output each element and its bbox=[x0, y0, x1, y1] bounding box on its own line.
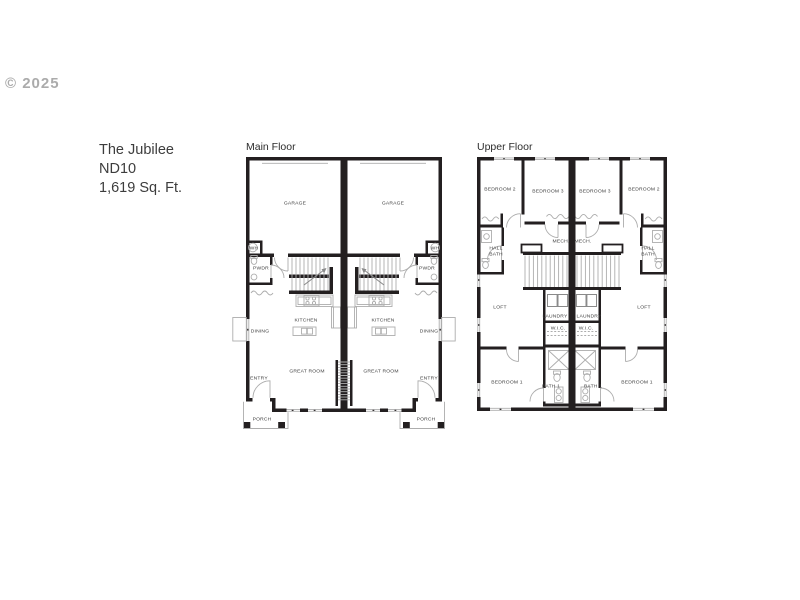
room-label-loft-left: LOFT bbox=[493, 304, 506, 310]
room-label-dining-left: DINING bbox=[250, 328, 268, 334]
room-label-wic-left: W.I.C. bbox=[551, 325, 566, 331]
room-label-entry-left: ENTRY bbox=[250, 375, 268, 381]
main-floor-left-unit bbox=[233, 157, 344, 429]
main-floor-title: Main Floor bbox=[246, 141, 296, 153]
room-label-porch-left: PORCH bbox=[253, 416, 272, 422]
room-label-kitchen-right: KITCHEN bbox=[371, 317, 394, 323]
plan-info: The Jubilee ND10 1,619 Sq. Ft. bbox=[99, 141, 182, 198]
room-label-pwdr-left: PWDR bbox=[253, 265, 269, 271]
room-label-bedroom3-right: BEDROOM 3 bbox=[579, 188, 610, 194]
room-label-hall-bath-right: HALLBATH bbox=[641, 245, 655, 257]
main-floor-plan: Main Floor bbox=[246, 157, 442, 439]
room-label-laundry-left: LAUNDRY bbox=[543, 313, 568, 319]
room-label-great-room-left: GREAT ROOM bbox=[289, 368, 324, 374]
room-label-loft-right: LOFT bbox=[637, 304, 650, 310]
room-label-garage-left: GARAGE bbox=[284, 200, 306, 206]
room-label-bedroom2-left: BEDROOM 2 bbox=[484, 186, 515, 192]
room-label-bath1-left: BATH 1 bbox=[542, 383, 560, 389]
room-label-bedroom3-left: BEDROOM 3 bbox=[532, 188, 563, 194]
room-label-laundry-right: LAUNDRY bbox=[577, 313, 602, 319]
room-label-kitchen-left: KITCHEN bbox=[294, 317, 317, 323]
room-label-entry-right: ENTRY bbox=[420, 375, 438, 381]
room-label-mech-right: MECH. bbox=[575, 238, 592, 244]
upper-floor-linework bbox=[477, 157, 667, 413]
plan-name: The Jubilee bbox=[99, 141, 182, 160]
room-label-mech-left: MECH. bbox=[553, 238, 570, 244]
room-label-garage-right: GARAGE bbox=[382, 200, 404, 206]
room-label-dining-right: DINING bbox=[419, 328, 437, 334]
copyright-watermark: © 2025 bbox=[5, 75, 60, 92]
room-label-bedroom1-right: BEDROOM 1 bbox=[621, 379, 652, 385]
room-label-bedroom2-right: BEDROOM 2 bbox=[628, 186, 659, 192]
room-label-hall-bath-left: HALLBATH bbox=[489, 245, 503, 257]
upper-floor-left-unit bbox=[477, 157, 572, 411]
plan-area: 1,619 Sq. Ft. bbox=[99, 179, 182, 198]
room-label-great-room-right: GREAT ROOM bbox=[363, 368, 398, 374]
room-label-bath1-right: BATH 1 bbox=[584, 383, 602, 389]
floorplan-sheet: © 2025 The Jubilee ND10 1,619 Sq. Ft. Ma… bbox=[0, 0, 800, 600]
room-label-pwdr-right: PWDR bbox=[419, 265, 435, 271]
room-label-porch-right: PORCH bbox=[417, 416, 436, 422]
upper-floor-title: Upper Floor bbox=[477, 141, 532, 153]
room-label-wh-right: WH bbox=[430, 245, 439, 251]
plan-code: ND10 bbox=[99, 160, 182, 179]
main-floor-linework bbox=[230, 157, 458, 439]
upper-floor-plan: Upper Floor bbox=[477, 157, 667, 413]
room-label-wh-left: WH bbox=[249, 245, 258, 251]
room-label-wic-right: W.I.C. bbox=[579, 325, 594, 331]
room-label-bedroom1-left: BEDROOM 1 bbox=[491, 379, 522, 385]
